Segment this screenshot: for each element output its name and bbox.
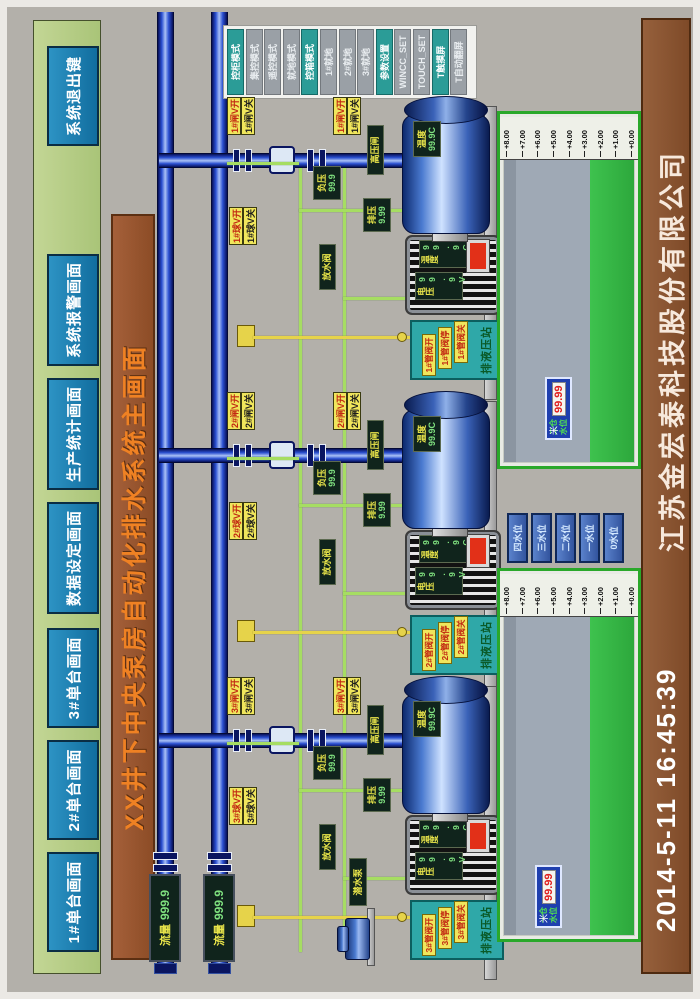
signal-line — [227, 742, 299, 745]
pressure-gauge: 排压 9.99 — [363, 198, 391, 232]
pipe-valve-open-button[interactable]: 1#管阀开 — [422, 334, 436, 376]
motor-indicator — [467, 240, 489, 272]
scale-label: +8.00 — [502, 130, 511, 149]
pressure-gauge: 排压 9.99 — [363, 778, 391, 812]
level-mark-button-3[interactable]: 二水位 — [555, 513, 576, 563]
scale-label: +1.00 — [611, 587, 620, 606]
pump-dome — [404, 96, 488, 124]
valve-status-label: 3#闸V开 — [333, 677, 347, 715]
drain-valve-label: 放水阀 — [319, 244, 336, 290]
motor-temp-label: 温度 99.9C — [419, 535, 467, 563]
pump-temp-label: 温度 99.9C — [413, 416, 441, 452]
valve-status-label: 1#闸V开 — [333, 97, 347, 135]
pipe-valve-close-button[interactable]: 2#管阀关 — [454, 616, 468, 658]
sensor-dot — [397, 912, 407, 922]
pump-dome — [404, 676, 488, 704]
motor-temp-label: 温度 99.9C — [419, 820, 467, 848]
mode-button-9[interactable]: 参数设置 — [376, 29, 393, 95]
drain-valve-label: 放水阀 — [319, 539, 336, 585]
water-level-display-left: 一仓 水位 99.99 米 — [535, 865, 562, 928]
valve-status-label: 2#球V关 — [243, 502, 257, 540]
discharge-gate-label: 高压闸 — [367, 125, 384, 175]
valve-status-label: 3#闸V关 — [241, 677, 255, 715]
water-level-display-right: 二仓 水位 99.99 米 — [545, 377, 572, 440]
pipe-valve-open-button[interactable]: 2#管阀开 — [422, 629, 436, 671]
valve-status-label: 1#闸V关 — [241, 97, 255, 135]
branch-flange — [233, 729, 240, 752]
motor-indicator — [467, 820, 489, 852]
branch-flange — [245, 444, 252, 467]
footer-bar: 2014-5-11 16:45:39 江苏金宏泰科技股份有限公司 — [641, 18, 691, 974]
valve-status-label: 1#球V关 — [243, 207, 257, 245]
mode-button-12[interactable]: T触摸屏 — [432, 29, 449, 95]
datetime: 2014-5-11 16:45:39 — [651, 668, 682, 932]
pump-temp-label: 温度 99.9C — [413, 701, 441, 737]
vacuum-gauge: 负压 99.9 — [313, 166, 341, 200]
scale-label: +7.00 — [518, 587, 527, 606]
pipe-valve-stop-button[interactable]: 1#管阀停 — [438, 327, 452, 369]
scale-label: +8.00 — [502, 587, 511, 606]
submersible-label: 潜水泵 — [349, 858, 367, 906]
sensor-dot — [397, 627, 407, 637]
scale-label: +2.00 — [596, 587, 605, 606]
drain-valve-label: 放水阀 — [319, 824, 336, 870]
valve-status-label: 2#闸V关 — [241, 392, 255, 430]
hydraulic-station: 1#管阀开 1#管阀停 1#管阀关 排液压站 — [410, 320, 504, 380]
pipe-valve-stop-button[interactable]: 2#管阀停 — [438, 622, 452, 664]
level-mark-button-1[interactable]: 四水位 — [507, 513, 528, 563]
branch-flange — [233, 444, 240, 467]
sensor-line — [253, 336, 410, 339]
valve-status-label: 1#闸V关 — [347, 97, 361, 135]
hydraulic-station: 2#管阀开 2#管阀停 2#管阀关 排液压站 — [410, 615, 504, 675]
mode-button-8[interactable]: 3#就地 — [357, 29, 374, 95]
scale-label: +6.00 — [533, 130, 542, 149]
hydraulic-station: 3#管阀开 3#管阀停 3#管阀关 排液压站 — [410, 900, 504, 960]
pump-temp-label: 温度 99.9C — [413, 121, 441, 157]
pipe-valve-close-button[interactable]: 1#管阀关 — [454, 321, 468, 363]
valve-status-label: 3#闸V关 — [347, 677, 361, 715]
branch-flange — [245, 729, 252, 752]
rotated-screenshot-viewport: 1#单台画面2#单台画面3#单台画面数据设定画面生产统计画面系统报警画面系统退出… — [0, 0, 700, 999]
valve-status-label: 3#球V开 — [229, 787, 243, 825]
mode-button-7[interactable]: 2#就地 — [339, 29, 356, 95]
mode-button-1[interactable]: 控柜模式 — [227, 29, 244, 95]
scale-label: +0.00 — [627, 587, 636, 606]
motor-voltage-label: 电压 99.9V — [415, 852, 463, 880]
mode-button-10[interactable]: WINCC_SET — [394, 29, 411, 95]
branch-flange — [245, 149, 252, 172]
hydraulic-station-title: 排液压站 — [478, 617, 494, 673]
valve-status-label: 3#球V关 — [243, 787, 257, 825]
discharge-gate-label: 高压闸 — [367, 420, 384, 470]
scale-label: +6.00 — [533, 587, 542, 606]
submersible-pump-cap — [337, 926, 349, 952]
motor-voltage-label: 电压 99.9V — [415, 272, 463, 300]
level-mark-button-4[interactable]: 一水位 — [579, 513, 600, 563]
scale-label: +3.00 — [580, 587, 589, 606]
valve-status-label: 2#闸V开 — [227, 392, 241, 430]
branch-flange — [233, 149, 240, 172]
company-name: 江苏金宏泰科技股份有限公司 — [651, 149, 690, 552]
motor-indicator — [467, 535, 489, 567]
pipe-elbow — [269, 146, 295, 174]
sensor-line — [253, 916, 410, 919]
pipe-valve-open-button[interactable]: 3#管阀开 — [422, 914, 436, 956]
valve-status-label: 1#球V开 — [229, 207, 243, 245]
vacuum-gauge: 负压 99.9 — [313, 746, 341, 780]
valve-status-label: 2#球V开 — [229, 502, 243, 540]
level-mark-button-2[interactable]: 三水位 — [531, 513, 552, 563]
pressure-gauge: 排压 9.99 — [363, 493, 391, 527]
mode-button-4[interactable]: 就地模式 — [283, 29, 300, 95]
valve-status-label: 3#闸V开 — [227, 677, 241, 715]
scale-label: +7.00 — [518, 130, 527, 149]
hmi-screen: 1#单台画面2#单台画面3#单台画面数据设定画面生产统计画面系统报警画面系统退出… — [0, 0, 700, 999]
sump-left-scale: +8.00+7.00+6.00+5.00+4.00+3.00+2.00+1.00… — [500, 574, 638, 617]
pipe-valve-stop-button[interactable]: 3#管阀停 — [438, 907, 452, 949]
level-mark-button-5[interactable]: 0水位 — [603, 513, 624, 563]
hydraulic-station-title: 排液压站 — [478, 902, 494, 958]
pipe-elbow — [269, 441, 295, 469]
pipe-elbow — [269, 726, 295, 754]
scale-label: +5.00 — [549, 587, 558, 606]
hydraulic-station-title: 排液压站 — [478, 322, 494, 378]
signal-line — [227, 162, 299, 165]
mode-button-11[interactable]: TOUCH_SET — [413, 29, 430, 95]
motor-voltage-label: 电压 99.9V — [415, 567, 463, 595]
mode-button-6[interactable]: 1#就地 — [320, 29, 337, 95]
sensor-dot — [397, 332, 407, 342]
mode-button-5[interactable]: 控箱模式 — [301, 29, 318, 95]
pump-dome — [404, 391, 488, 419]
sensor-line — [253, 631, 410, 634]
valve-status-label: 2#闸V开 — [333, 392, 347, 430]
mode-button-2[interactable]: 集控模式 — [246, 29, 263, 95]
mode-button-3[interactable]: 遥控模式 — [264, 29, 281, 95]
motor-temp-label: 温度 99.9C — [419, 240, 467, 268]
pipe-valve-close-button[interactable]: 3#管阀关 — [454, 901, 468, 943]
discharge-gate-label: 高压闸 — [367, 705, 384, 755]
scale-label: +4.00 — [565, 587, 574, 606]
mode-button-13[interactable]: T自动翻屏 — [450, 29, 467, 95]
valve-status-label: 2#闸V关 — [347, 392, 361, 430]
vacuum-gauge: 负压 99.9 — [313, 461, 341, 495]
valve-status-label: 1#闸V开 — [227, 97, 241, 135]
signal-line — [227, 457, 299, 460]
